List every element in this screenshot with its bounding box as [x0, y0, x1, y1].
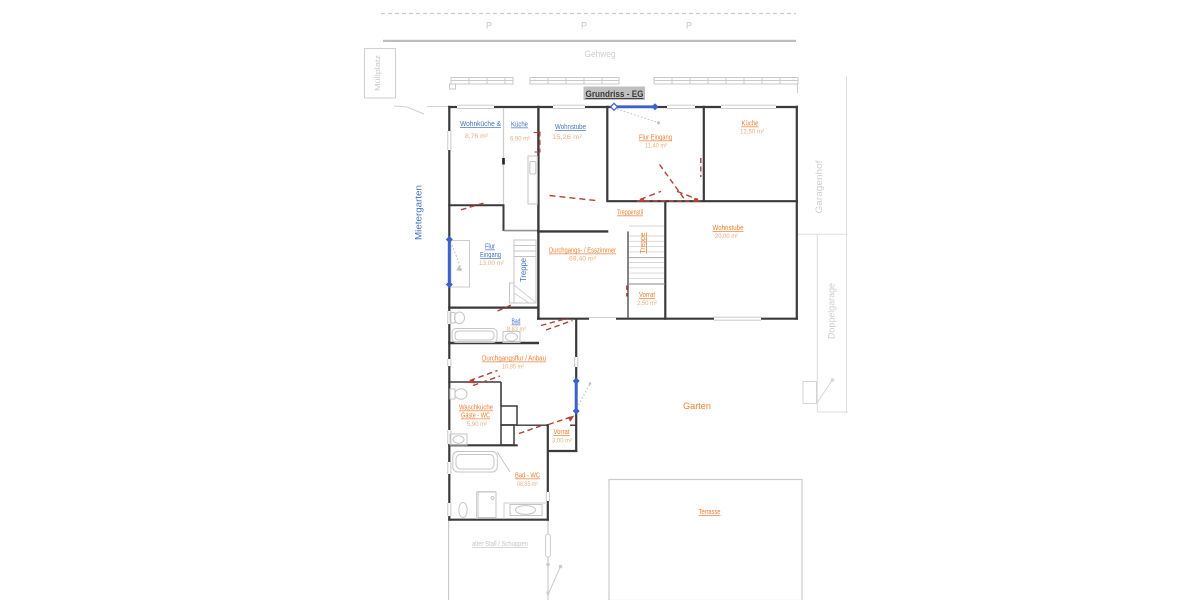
svg-text:P: P	[686, 21, 692, 31]
svg-text:Mietergarten: Mietergarten	[414, 185, 425, 240]
svg-text:12,50 m²: 12,50 m²	[740, 129, 764, 136]
svg-text:Garten: Garten	[683, 401, 711, 412]
svg-text:3,00 m²: 3,00 m²	[552, 438, 572, 445]
svg-text:Küche: Küche	[742, 121, 759, 128]
svg-text:Flur: Flur	[485, 244, 496, 251]
svg-text:Vorrat: Vorrat	[639, 292, 655, 299]
svg-text:Flur Eingang: Flur Eingang	[639, 135, 672, 142]
svg-text:6,90 m²: 6,90 m²	[510, 136, 530, 143]
svg-text:Küche: Küche	[511, 122, 528, 129]
svg-text:10,95 m²: 10,95 m²	[502, 364, 524, 371]
svg-text:2,50 m²: 2,50 m²	[637, 300, 657, 307]
svg-text:08,55 m²: 08,55 m²	[517, 481, 538, 488]
svg-text:69,40 m²: 69,40 m²	[569, 256, 596, 263]
svg-text:P: P	[486, 21, 492, 31]
svg-text:20,00 m²: 20,00 m²	[715, 233, 738, 240]
svg-text:Wohnküche &: Wohnküche &	[460, 121, 501, 128]
svg-text:Grundriss - EG: Grundriss - EG	[586, 89, 644, 99]
svg-text:Durchgangs- / Esszimmer: Durchgangs- / Esszimmer	[549, 248, 617, 255]
svg-text:Gehweg: Gehweg	[585, 49, 616, 59]
svg-text:8,83 m²: 8,83 m²	[507, 326, 526, 333]
svg-text:Vorrat: Vorrat	[554, 429, 570, 436]
svg-text:Treppe: Treppe	[638, 233, 647, 254]
svg-text:5,90 m²: 5,90 m²	[467, 421, 487, 428]
svg-text:P: P	[581, 21, 587, 31]
svg-text:13,00 m²: 13,00 m²	[479, 260, 504, 267]
svg-text:Eingang: Eingang	[480, 252, 501, 259]
svg-text:11,40 m²: 11,40 m²	[645, 143, 667, 150]
svg-text:Treppe: Treppe	[519, 258, 528, 282]
svg-text:8,76 m²: 8,76 m²	[465, 133, 488, 140]
svg-text:alter Stall / Schuppen: alter Stall / Schuppen	[472, 541, 528, 548]
svg-text:Müllplatz: Müllplatz	[375, 54, 382, 91]
svg-text:Bad: Bad	[512, 319, 521, 326]
svg-text:Wohnstube: Wohnstube	[555, 124, 586, 131]
svg-text:15,26 m²: 15,26 m²	[552, 134, 582, 141]
svg-text:Gäste - WC: Gäste - WC	[461, 413, 490, 420]
svg-text:Treppenstil: Treppenstil	[617, 210, 643, 217]
svg-text:Bad - WC: Bad - WC	[515, 473, 540, 480]
svg-text:Durchgangsflur / Anbau: Durchgangsflur / Anbau	[482, 356, 546, 363]
svg-text:Terrasse: Terrasse	[699, 509, 721, 516]
svg-text:Wohnstube: Wohnstube	[713, 225, 744, 232]
svg-text:Waschküche: Waschküche	[459, 405, 493, 412]
svg-text:Doppelgarage: Doppelgarage	[827, 283, 837, 339]
svg-text:Garagenhof: Garagenhof	[814, 160, 824, 214]
